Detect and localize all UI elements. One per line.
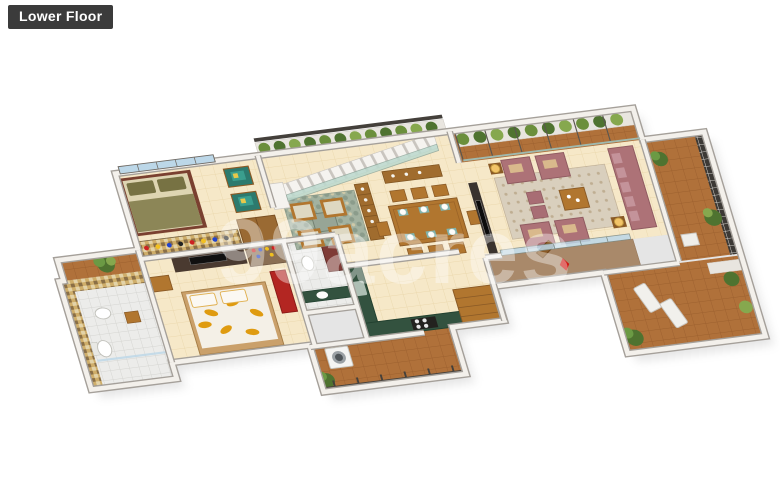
- floor-plan-image: 99acres Lower Floor: [0, 0, 780, 490]
- pillow: [189, 293, 217, 308]
- plan-group: [25, 83, 774, 430]
- teal-armchair: [231, 191, 261, 212]
- dining-table: [388, 198, 468, 246]
- armchair: [501, 157, 537, 184]
- wooden-stool: [124, 311, 141, 323]
- coffee-table: [559, 187, 590, 210]
- armchair: [535, 152, 571, 179]
- pillow: [220, 289, 248, 304]
- dining-chair: [411, 187, 428, 200]
- teal-armchair: [223, 166, 253, 187]
- leaf-pattern-bed: [181, 282, 284, 356]
- dining-chair: [432, 184, 449, 197]
- floor-label-badge: Lower Floor: [8, 5, 113, 29]
- ottoman: [526, 191, 544, 205]
- white-chair: [681, 233, 700, 247]
- floor-plan-render: [0, 0, 780, 490]
- dining-chair: [390, 189, 407, 202]
- ottoman: [531, 205, 549, 219]
